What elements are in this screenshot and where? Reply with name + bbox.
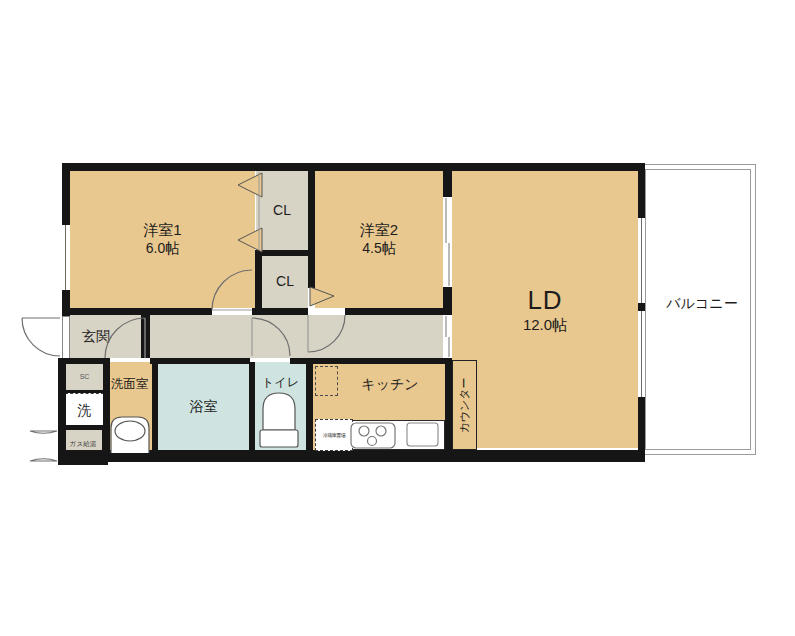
closet2-label: CL [276,273,294,291]
gas-heater-doors-icon [30,431,57,461]
wall-left-upper [62,171,70,225]
wall-sc-column-right [103,358,110,462]
wall-hall-bottom-1 [58,358,107,364]
bathroom-label: 浴室 [190,398,218,416]
toilet-room: トイレ [255,362,306,452]
toilet-label: トイレ [262,374,299,391]
counter: カウンター [452,360,477,450]
gas-heater-label: ガス給湯 [70,440,96,449]
wall-left-lower [58,360,66,462]
ld-label: LD [527,284,562,317]
closet2: CL [262,256,308,308]
floor-plan: バルコニー 洋室1 6.0帖 CL CL 洋室2 4.5帖 LD 12.0帖 玄… [0,0,795,636]
wall-closet-right [308,171,315,288]
shoe-closet: SC [66,361,103,391]
wall-bathroom-right [249,362,255,452]
wall-entrance-stub [141,315,150,358]
window-ld-1 [638,218,645,303]
washroom: 洗面室 [107,362,152,452]
wall-closet-divider [255,250,310,256]
closet1: CL [256,171,308,250]
wall-hall-top-2 [252,308,308,315]
sliding-door-b2-ld [443,197,452,287]
wall-kitchen-right [445,358,452,450]
balcony-label: バルコニー [648,295,756,313]
wall-ld-right-a [638,163,645,218]
kitchen-label: キッチン [361,376,418,394]
wall-hall-bottom-3 [290,358,445,364]
wall-b2-ld-top [443,171,452,197]
bedroom1-label: 洋室1 [143,221,181,240]
wall-hall-top-3 [345,308,443,315]
sliding-door-hall-ld [443,315,452,358]
wall-closet2-left [255,256,262,308]
wall-hall-top-1 [62,308,212,315]
wall-ld-right-c [638,397,645,450]
entrance-door-icon [22,318,60,356]
ld-size: 12.0帖 [523,316,567,335]
kitchen-dashed-area [315,366,338,396]
wall-ld-right-b [638,303,645,311]
fridge-space-label: 冷蔵庫置場 [323,432,346,438]
room-bedroom1: 洋室1 6.0帖 [70,171,255,308]
closet1-label: CL [273,202,291,220]
window-ld-2 [638,311,645,397]
shoe-closet-label: SC [80,373,90,380]
entrance-label: 玄関 [82,328,110,346]
washer-space: 洗 [65,393,104,428]
window-bedroom1 [62,225,70,290]
room-bedroom2: 洋室2 4.5帖 [315,171,443,308]
corridor: 玄関 [70,315,443,358]
wall-washroom-right [152,362,158,452]
entrance-door-opening [62,316,70,360]
bedroom2-label: 洋室2 [360,221,398,240]
wall-b2-ld-bottom [443,287,452,315]
fridge-space: 冷蔵庫置場 [315,419,353,451]
wall-hall-bottom-2 [150,358,250,364]
closet2-door-opening [308,288,315,308]
washer-label: 洗 [78,402,92,420]
kitchen-worktop [345,420,445,450]
wall-toilet-right [306,362,313,452]
washroom-label: 洗面室 [111,376,149,393]
counter-label: カウンター [457,377,472,433]
wall-bottom [58,450,645,462]
bedroom1-size: 6.0帖 [146,240,179,258]
room-living-dining: LD 12.0帖 [452,171,638,448]
wall-top [62,163,645,171]
wall-sc-washer-divider [64,390,104,393]
bathroom: 浴室 [158,362,249,452]
bedroom2-size: 4.5帖 [362,240,395,258]
